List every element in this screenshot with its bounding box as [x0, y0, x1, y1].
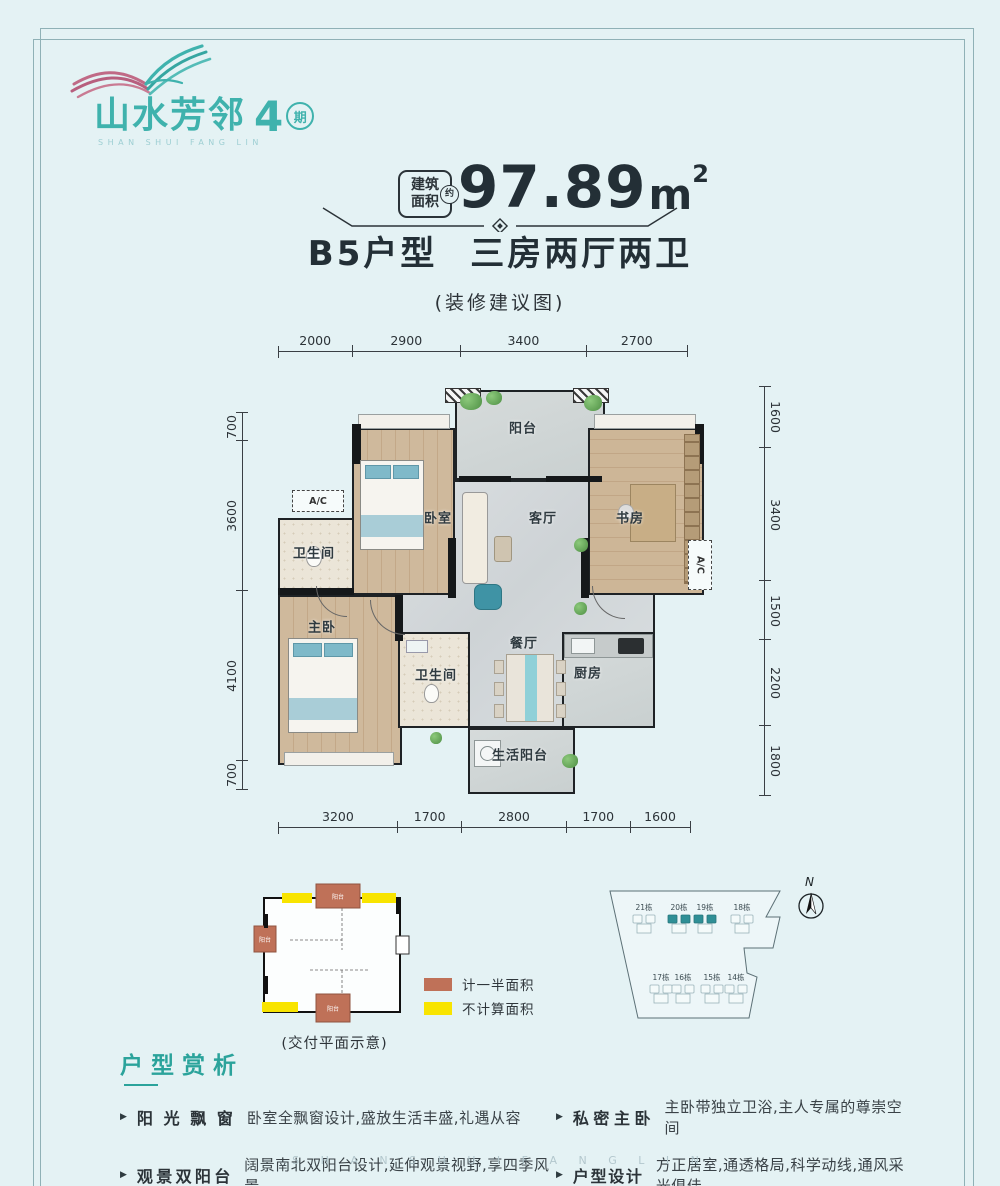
legend-label: 计一半面积 [462, 974, 535, 994]
bay-window [594, 414, 696, 429]
building-label: 17栋 [652, 972, 670, 982]
dining-table [506, 654, 554, 722]
dim-segment: 2200 [765, 640, 785, 726]
dim-segment: 700 [222, 761, 242, 790]
dim-segment: 3600 [222, 441, 242, 591]
legend-yellow-strip [282, 893, 312, 903]
dim-segment: 2800 [462, 812, 567, 828]
dim-right: 1600 3400 1500 2200 1800 [764, 386, 785, 796]
dim-segment: 3200 [278, 812, 398, 828]
legend-half-area: 计一半面积 [424, 974, 535, 994]
kitchen-counter [564, 634, 653, 658]
dim-segment: 700 [222, 412, 242, 441]
building-label: 18栋 [733, 902, 751, 912]
north-label: N [805, 875, 814, 889]
logo: 山水芳邻 4 期 SHAN SHUI FANG LIN [68, 44, 348, 164]
unit-title: B5户型 三房两厅两卫 [0, 226, 1000, 275]
room-label-bath2: 卫生间 [415, 665, 457, 684]
area-exponent: 2 [692, 162, 709, 186]
plant [584, 395, 602, 411]
floor-plan: A/C A/C 阳台 卧室 客厅 书房 卫生间 主卧 卫生间 餐厅 厨房 生活阳… [278, 388, 704, 795]
dim-segment: 4100 [222, 591, 242, 761]
pillow [393, 465, 419, 479]
room-label-balcony: 阳台 [509, 418, 537, 437]
dim-segment: 3400 [765, 448, 785, 581]
north-compass-icon: N [799, 875, 823, 918]
analysis-term: 阳光飘窗 [137, 1105, 233, 1129]
logo-latin-text: SHAN SHUI FANG LIN [98, 138, 263, 147]
dining-chair [494, 704, 504, 718]
legend-orange-swatch [424, 978, 452, 991]
plant [574, 602, 587, 615]
wall-block [448, 538, 456, 598]
mini-balcony-label: 阳台 [259, 936, 271, 944]
legend-label: 不计算面积 [462, 998, 535, 1018]
unit-layout: 三房两厅两卫 [470, 234, 692, 274]
analysis-desc: 主卧带独立卫浴,主人专属的尊崇空间 [664, 1096, 910, 1138]
room-label-service-balcony: 生活阳台 [492, 745, 548, 764]
bullet-triangle-icon: ▶ [556, 1112, 563, 1122]
wall-block [459, 476, 511, 482]
dining-chair [494, 682, 504, 696]
ac-unit-badge: A/C [688, 540, 712, 590]
logo-phase-number: 4 [254, 96, 283, 138]
table-runner [525, 655, 537, 721]
pillow [365, 465, 391, 479]
watermark-text: S H A N S H U I F A N G L I N [0, 1154, 1000, 1167]
dim-segment: 1500 [765, 581, 785, 640]
bullet-triangle-icon: ▶ [556, 1170, 563, 1180]
legend-yellow-swatch [424, 1002, 452, 1015]
bed-throw [361, 515, 423, 537]
dim-bottom: 3200 1700 2800 1700 1600 [278, 812, 690, 828]
bed-throw [289, 698, 357, 720]
building-label: 19栋 [696, 902, 714, 912]
room-label-dining: 餐厅 [510, 633, 538, 652]
dim-top: 2000 2900 3400 2700 [278, 336, 687, 352]
dim-segment: 1600 [630, 812, 690, 828]
sink [571, 638, 595, 654]
armchair [474, 584, 502, 610]
room-label-study: 书房 [616, 508, 644, 527]
area-badge-line1: 建筑 [411, 177, 439, 195]
heading-underline [124, 1084, 158, 1086]
analysis-desc: 卧室全飘窗设计,盛放生活丰盛,礼遇从容 [247, 1107, 521, 1128]
legend-yellow-strip [362, 893, 396, 903]
dining-chair [556, 704, 566, 718]
dim-segment: 1800 [765, 726, 785, 796]
dim-segment: 2900 [352, 336, 460, 352]
analysis-items: ▶ 阳光飘窗 卧室全飘窗设计,盛放生活丰盛,礼遇从容 ▶ 私密主卧 主卧带独立卫… [120, 1096, 910, 1186]
mini-balcony-label: 阳台 [332, 893, 344, 901]
bathroom-sink [406, 640, 428, 653]
dim-segment: 1700 [398, 812, 462, 828]
room-label-kitchen: 厨房 [574, 663, 602, 682]
building-label: 16栋 [674, 972, 692, 982]
legend-excluded-area: 不计算面积 [424, 998, 535, 1018]
area-approx-circle: 约 [440, 185, 459, 204]
dining-chair [556, 660, 566, 674]
legend-yellow-strip [262, 1002, 298, 1012]
ac-unit-badge: A/C [292, 490, 344, 512]
plan-note: (装修建议图) [0, 288, 1000, 315]
room-label-bath1: 卫生间 [293, 543, 335, 562]
dining-chair [556, 682, 566, 696]
sofa [462, 492, 488, 584]
dim-segment: 1600 [765, 386, 785, 448]
pillow [324, 643, 353, 657]
analysis-heading: 户型赏析 [120, 1046, 244, 1080]
plant [574, 538, 588, 552]
dim-left: 700 3600 4100 700 [222, 412, 243, 790]
ac-box [396, 936, 409, 954]
dim-segment: 2000 [278, 336, 352, 352]
plant [486, 391, 502, 405]
pillow [293, 643, 322, 657]
room-label-master: 主卧 [308, 617, 336, 636]
analysis-item: ▶ 私密主卧 主卧带独立卫浴,主人专属的尊崇空间 [556, 1096, 910, 1138]
dim-segment: 2700 [587, 336, 687, 352]
bullet-triangle-icon: ▶ [120, 1112, 127, 1122]
analysis-term: 私密主卧 [573, 1105, 651, 1129]
logo-name: 山水芳邻 [94, 86, 246, 138]
logo-text-row: 山水芳邻 4 期 [94, 86, 314, 138]
wall-block [546, 476, 602, 482]
room-label-living: 客厅 [529, 508, 557, 527]
dining-chair [494, 660, 504, 674]
delivery-caption: (交付平面示意) [252, 1032, 417, 1053]
bed [288, 638, 358, 733]
unit-name: B5户型 [308, 234, 438, 274]
room-label-bedroom: 卧室 [424, 508, 452, 527]
toilet [424, 684, 439, 703]
building-label: 15栋 [703, 972, 721, 982]
building-label: 14栋 [727, 972, 745, 982]
stove [618, 638, 644, 654]
plant [460, 393, 482, 410]
bay-window [358, 414, 450, 429]
analysis-item: ▶ 阳光飘窗 卧室全飘窗设计,盛放生活丰盛,礼遇从容 [120, 1096, 556, 1138]
coffee-table [494, 536, 512, 562]
plant [562, 754, 578, 768]
logo-phase-suffix: 期 [286, 102, 314, 130]
plant [430, 732, 442, 744]
poster-page: 山水芳邻 4 期 SHAN SHUI FANG LIN 建筑 面积 约 97.8… [0, 0, 1000, 1186]
bed [360, 460, 424, 550]
bullet-triangle-icon: ▶ [120, 1170, 127, 1180]
site-plan: 21栋 20栋 19栋 18栋 17栋 16栋 15栋 14栋 N [606, 872, 841, 1044]
wall-block [352, 424, 361, 464]
building-label: 21栋 [635, 902, 653, 912]
building-label: 20栋 [670, 902, 688, 912]
delivery-plan: 阳台 阳台 阳台 [250, 878, 415, 1030]
dim-segment: 1700 [566, 812, 630, 828]
bay-window [284, 752, 394, 766]
dim-segment: 3400 [460, 336, 586, 352]
mini-balcony-label: 阳台 [327, 1005, 339, 1013]
